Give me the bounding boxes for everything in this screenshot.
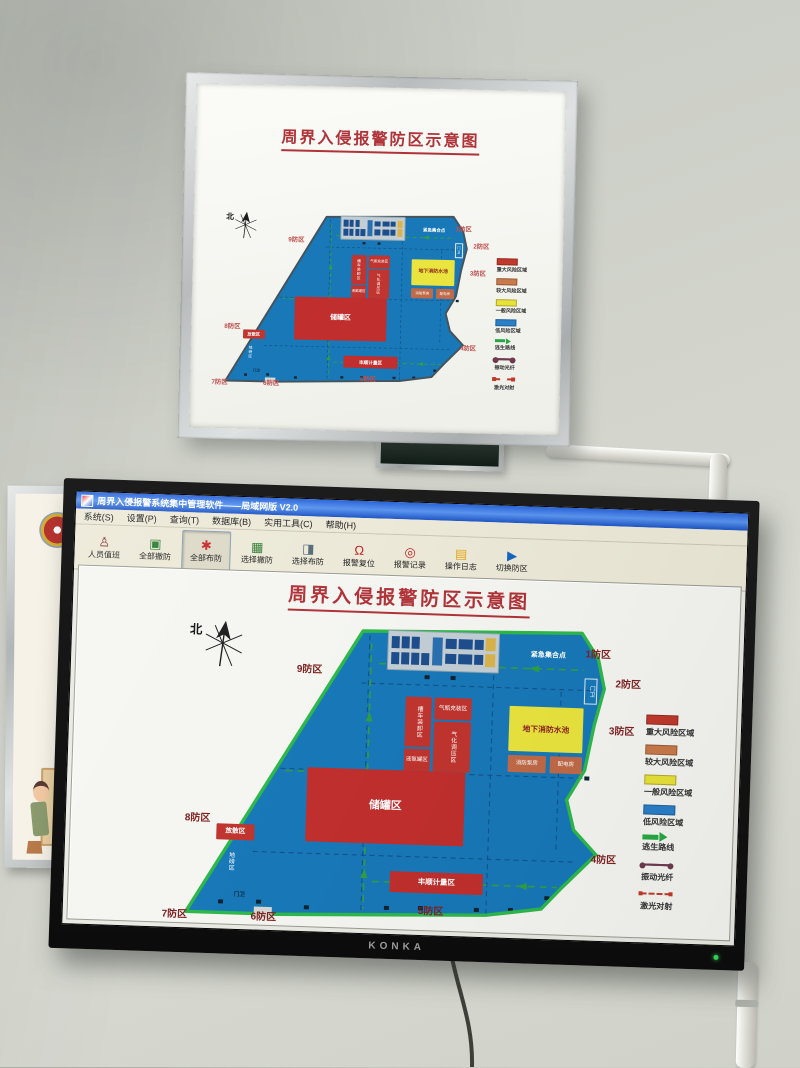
office-cell — [361, 229, 366, 236]
emergency-assembly-point-label: 紧急集合点 — [531, 651, 566, 661]
legend-item-3: 低风险区域 — [643, 805, 728, 831]
legend-item-4: 逃生路线 — [495, 340, 549, 352]
tanker-loading-area: 槽车装卸区 — [404, 696, 432, 747]
legend: 重大风险区域较大风险区域一般风险区域低风险区域逃生路线振动光纤激光对射 — [640, 714, 730, 914]
legend-item-0: 重大风险区域 — [497, 258, 551, 275]
zone-label-4: 4防区 — [460, 343, 476, 352]
metering-area: 丰顺计量区 — [389, 871, 483, 895]
zone-label-5: 5防区 — [360, 374, 376, 383]
zone-label-2: 2防区 — [473, 241, 489, 250]
office-cell — [459, 639, 473, 649]
building-label: 气化调压区 — [376, 273, 381, 294]
gate-guard-top: 门卫 — [584, 678, 598, 704]
emergency-assembly-point-label: 紧急集合点 — [423, 227, 445, 233]
site-map: 槽车装卸区气瓶充装区气化调压区液氨罐区地下消防水池消防泵房配电房储罐区放散区丰顺… — [156, 616, 666, 932]
zone-label-8: 8防区 — [224, 321, 240, 330]
zone-label-1: 1防区 — [585, 645, 611, 661]
gate-guard-top: 门卫 — [455, 243, 463, 258]
legend-item-6: 激光对射 — [494, 376, 548, 392]
office-cell — [401, 653, 409, 665]
tank-farm: 储罐区 — [305, 767, 465, 846]
legend-item-1: 较大风险区域 — [496, 278, 550, 295]
arrow-shaft — [642, 835, 658, 840]
office-cell — [391, 221, 396, 227]
cylinder-filling-area: 气瓶充装区 — [434, 697, 472, 720]
fire-water-pool: 地下消防水池 — [411, 259, 454, 286]
toolbar-button-label: 报警复位 — [343, 557, 375, 569]
tv-screen: 周界入侵报警系统集中管理软件——局域网版 V2.0 系统(S)设置(P)查询(T… — [61, 490, 749, 946]
menu-item-0[interactable]: 系统(S) — [84, 510, 114, 524]
building-label: 配电房 — [557, 762, 574, 769]
cartoon-figure — [30, 801, 49, 836]
zone-label-7: 7防区 — [161, 904, 187, 920]
site-map: 槽车装卸区气瓶充装区气化调压区液氨罐区地下消防水池消防泵房配电房储罐区放散区丰顺… — [208, 210, 502, 391]
zone-label-9: 9防区 — [297, 660, 323, 676]
laser-beam-icon — [494, 378, 513, 380]
north-arrow-icon — [233, 211, 258, 239]
menu-item-3[interactable]: 数据库(B) — [212, 514, 251, 528]
building-label: 气瓶充装区 — [439, 705, 468, 713]
tv-power-led-icon — [713, 955, 718, 960]
legend-swatch — [495, 319, 516, 327]
toolbar-button-4[interactable]: ◨选择布防 — [283, 533, 333, 575]
office-cell — [485, 638, 495, 651]
cylinder-filling-area: 气瓶充装区 — [368, 255, 390, 268]
building-label: 放散区 — [225, 828, 245, 837]
office-complex — [341, 216, 406, 241]
office-cell — [445, 654, 456, 664]
building-label: 地下消防水池 — [522, 724, 569, 735]
power-room: 配电房 — [436, 288, 455, 298]
office-cell — [446, 638, 457, 648]
app-content: 周界入侵报警防区示意图 — [66, 565, 741, 942]
office-cell — [367, 220, 373, 236]
building-label: 消防泵房 — [415, 291, 429, 295]
office-complex — [387, 630, 500, 674]
gasification-area: 气化调压区 — [432, 721, 471, 772]
office-cell — [344, 229, 349, 236]
zone-label-6: 6防区 — [250, 907, 276, 923]
building-label: 液氨罐区 — [406, 756, 428, 763]
toolbar-button-5[interactable]: Ω报警复位 — [334, 535, 384, 577]
wall-poster-frame: 周界入侵报警防区示意图 — [178, 72, 578, 447]
gate-guard-top-label: 门卫 — [457, 246, 461, 254]
zone-label-3: 3防区 — [609, 722, 635, 738]
menu-item-1[interactable]: 设置(P) — [127, 511, 157, 525]
toolbar-button-label: 选择撤防 — [241, 553, 273, 565]
office-cell — [391, 652, 399, 664]
toolbar-button-0[interactable]: ♙人员值班 — [79, 527, 129, 569]
building-label: 消防泵房 — [516, 760, 538, 767]
legend-item-2: 一般风险区域 — [496, 299, 550, 316]
fire-pump-house: 消防泵房 — [411, 288, 433, 298]
office-cell — [485, 654, 495, 667]
legend-label: 逃生路线 — [495, 344, 516, 351]
zone-label-8: 8防区 — [185, 808, 211, 824]
toolbar-button-8[interactable]: ▶切换防区 — [487, 540, 537, 582]
emergency-assembly-point: 紧急集合点 — [416, 226, 453, 234]
ammonia-tank-area: 液氨罐区 — [403, 748, 430, 771]
toolbar-button-label: 报警记录 — [394, 558, 426, 570]
cartoon-figure-head — [33, 781, 49, 802]
legend: 重大风险区域较大风险区域一般风险区域低风险区域逃生路线振动光纤激光对射 — [494, 258, 551, 392]
arm-all-icon: ✱ — [201, 538, 212, 551]
poster-zone-diagram: 槽车装卸区气瓶充装区气化调压区液氨罐区地下消防水池消防泵房配电房储罐区放散区丰顺… — [205, 164, 555, 428]
escape-route-arrow-icon — [642, 835, 665, 841]
emergency-assembly-point: 紧急集合点 — [516, 649, 580, 663]
gate-guard-bottom-label: 门卫 — [253, 368, 260, 372]
legend-label: 一般风险区域 — [644, 787, 693, 800]
building-label: 液氨罐区 — [352, 289, 366, 293]
toolbar-button-6[interactable]: ◎报警记录 — [385, 537, 435, 579]
wall-poster: 周界入侵报警防区示意图 — [189, 83, 567, 435]
operation-log-icon: ▤ — [455, 547, 468, 560]
poster-title: 周界入侵报警防区示意图 — [195, 121, 566, 157]
office-cell — [349, 229, 354, 236]
legend-swatch — [646, 714, 679, 725]
legend-label: 低风险区域 — [495, 328, 521, 336]
weighbridge-area-label: 地磅区 — [248, 345, 253, 358]
vibration-fiber-icon — [495, 358, 514, 360]
legend-label: 逃生路线 — [642, 841, 675, 853]
building-label: 气瓶充装区 — [370, 259, 388, 264]
zone-label-2: 2防区 — [615, 675, 641, 691]
toolbar-button-label: 人员值班 — [88, 548, 120, 560]
office-cell — [382, 230, 390, 236]
legend-label: 重大风险区域 — [497, 266, 528, 274]
legend-label: 激光对射 — [494, 384, 515, 391]
gate-guard-bottom-label: 门卫 — [233, 891, 245, 898]
tank-farm: 储罐区 — [294, 296, 387, 341]
gasification-area: 气化调压区 — [368, 269, 390, 298]
zone-label-3: 3防区 — [470, 268, 486, 277]
building-label: 地下消防水池 — [418, 270, 448, 277]
disarm-all-icon: ▣ — [149, 536, 162, 549]
toolbar-button-label: 全部撤防 — [139, 550, 171, 562]
menu-item-4[interactable]: 实用工具(C) — [264, 516, 313, 531]
legend-item-5: 振动光纤 — [641, 859, 726, 884]
arrow-shaft — [495, 340, 505, 343]
office-cell — [391, 230, 396, 236]
legend-label: 重大风险区域 — [646, 727, 695, 740]
dispersal-area: 放散区 — [216, 823, 255, 840]
office-cell — [474, 655, 483, 665]
menu-item-2[interactable]: 查询(T) — [169, 513, 199, 527]
fire-water-pool: 地下消防水池 — [508, 706, 583, 753]
zone-label-5: 5防区 — [418, 902, 444, 918]
monitor-zone-diagram: 槽车装卸区气瓶充装区气化调压区液氨罐区地下消防水池消防泵房配电房储罐区放散区丰顺… — [76, 606, 734, 936]
legend-item-2: 一般风险区域 — [644, 775, 729, 801]
office-cell — [355, 229, 360, 236]
toolbar-button-2[interactable]: ✱全部布防 — [181, 530, 231, 572]
north-arrow-icon — [202, 620, 246, 669]
weighbridge-area: 地磅区 — [223, 843, 237, 881]
tanker-loading-area: 槽车装卸区 — [351, 255, 367, 284]
legend-item-1: 较大风险区域 — [645, 745, 730, 771]
pipe-clamp — [735, 1000, 758, 1008]
ammonia-tank-area: 液氨罐区 — [351, 285, 366, 298]
tv-brand-logo: KONKA — [368, 940, 425, 953]
office-cell — [392, 636, 400, 648]
menu-item-5[interactable]: 帮助(H) — [325, 518, 356, 532]
vibration-fiber-icon — [641, 863, 671, 866]
office-cell — [397, 220, 403, 227]
office-cell — [375, 221, 381, 227]
zone-label-9: 9防区 — [288, 234, 304, 243]
toolbar-button-label: 全部布防 — [190, 552, 222, 564]
legend-label: 较大风险区域 — [496, 287, 527, 295]
gate-guard-bottom: 门卫 — [228, 890, 250, 901]
legend-swatch — [643, 805, 676, 816]
office-cell — [458, 654, 472, 664]
legend-swatch — [496, 299, 517, 307]
legend-swatch — [497, 258, 518, 266]
toolbar-button-7[interactable]: ▤操作日志 — [436, 538, 486, 580]
arrow-head — [506, 338, 511, 344]
office-cell — [374, 229, 380, 235]
office-cell — [355, 220, 360, 227]
zone-label-4: 4防区 — [590, 851, 616, 867]
tv-monitor: 周界入侵报警系统集中管理软件——局域网版 V2.0 系统(S)设置(P)查询(T… — [48, 478, 759, 971]
power-room: 配电房 — [549, 756, 582, 774]
building-label: 丰顺计量区 — [359, 360, 382, 366]
dispersal-area: 放散区 — [243, 329, 265, 339]
building-label: 储罐区 — [369, 800, 402, 814]
arrow-head — [659, 832, 667, 842]
person-icon: ♙ — [98, 535, 110, 548]
office-cell — [344, 220, 349, 227]
building-label: 槽车装卸区 — [414, 706, 422, 738]
legend-swatch — [645, 745, 678, 756]
legend-label: 振动光纤 — [494, 364, 515, 371]
app-icon — [81, 494, 93, 506]
alarm-reset-icon: Ω — [354, 543, 364, 556]
fire-pump-house: 消防泵房 — [508, 755, 547, 773]
legend-item-3: 低风险区域 — [495, 319, 549, 336]
switch-zone-icon: ▶ — [507, 548, 517, 561]
north-label: 北 — [226, 211, 234, 222]
toolbar-button-1[interactable]: ▣全部撤防 — [130, 528, 180, 570]
office-cell — [411, 653, 419, 665]
office-cell — [382, 221, 390, 227]
zone-label-7: 7防区 — [211, 377, 227, 386]
legend-label: 激光对射 — [640, 901, 673, 913]
building-label: 丰顺计量区 — [418, 878, 455, 888]
toolbar-button-label: 操作日志 — [445, 560, 477, 572]
legend-item-6: 激光对射 — [640, 889, 725, 914]
gate-guard-bottom: 门卫 — [250, 368, 263, 374]
building-label: 配电房 — [440, 291, 450, 295]
arm-select-icon: ◨ — [302, 541, 315, 554]
cartoon-bucket — [26, 841, 42, 854]
legend-label: 较大风险区域 — [645, 757, 694, 770]
laser-beam-icon — [640, 893, 670, 896]
legend-label: 振动光纤 — [641, 871, 674, 883]
legend-swatch — [644, 775, 677, 786]
alarm-record-icon: ◎ — [404, 545, 416, 558]
building-label: 气化调压区 — [448, 731, 456, 763]
legend-item-0: 重大风险区域 — [646, 714, 731, 740]
office-cell — [349, 220, 354, 227]
office-cell — [432, 637, 443, 666]
building-label: 放散区 — [247, 331, 260, 336]
office-cell — [474, 639, 483, 649]
north-label: 北 — [190, 619, 203, 637]
toolbar-button-3[interactable]: ▦选择撤防 — [232, 532, 282, 574]
building-label: 储罐区 — [330, 314, 351, 323]
legend-label: 低风险区域 — [643, 817, 684, 829]
legend-label: 一般风险区域 — [496, 307, 527, 315]
weighbridge-area: 地磅区 — [247, 340, 255, 362]
gate-guard-top-label: 门卫 — [587, 685, 594, 698]
office-cell — [402, 636, 410, 648]
building-label: 槽车装卸区 — [357, 259, 362, 280]
weighbridge-area-label: 地磅区 — [226, 852, 234, 871]
zone-label-6: 6防区 — [263, 378, 279, 387]
zone-label-1: 1防区 — [456, 224, 472, 233]
conduit-pipe-horizontal — [546, 444, 730, 467]
toolbar-button-label: 选择布防 — [292, 555, 324, 567]
office-cell — [421, 653, 429, 665]
legend-swatch — [496, 278, 517, 286]
conduit-pipe-vertical-bottom — [736, 962, 758, 1068]
legend-item-4: 逃生路线 — [642, 835, 727, 856]
escape-route-arrow-icon — [495, 340, 509, 343]
legend-item-5: 振动光纤 — [494, 356, 548, 372]
disarm-select-icon: ▦ — [251, 540, 264, 553]
metering-area: 丰顺计量区 — [343, 356, 397, 369]
office-cell — [412, 636, 420, 648]
office-cell — [397, 229, 403, 236]
toolbar-button-label: 切换防区 — [496, 562, 528, 574]
